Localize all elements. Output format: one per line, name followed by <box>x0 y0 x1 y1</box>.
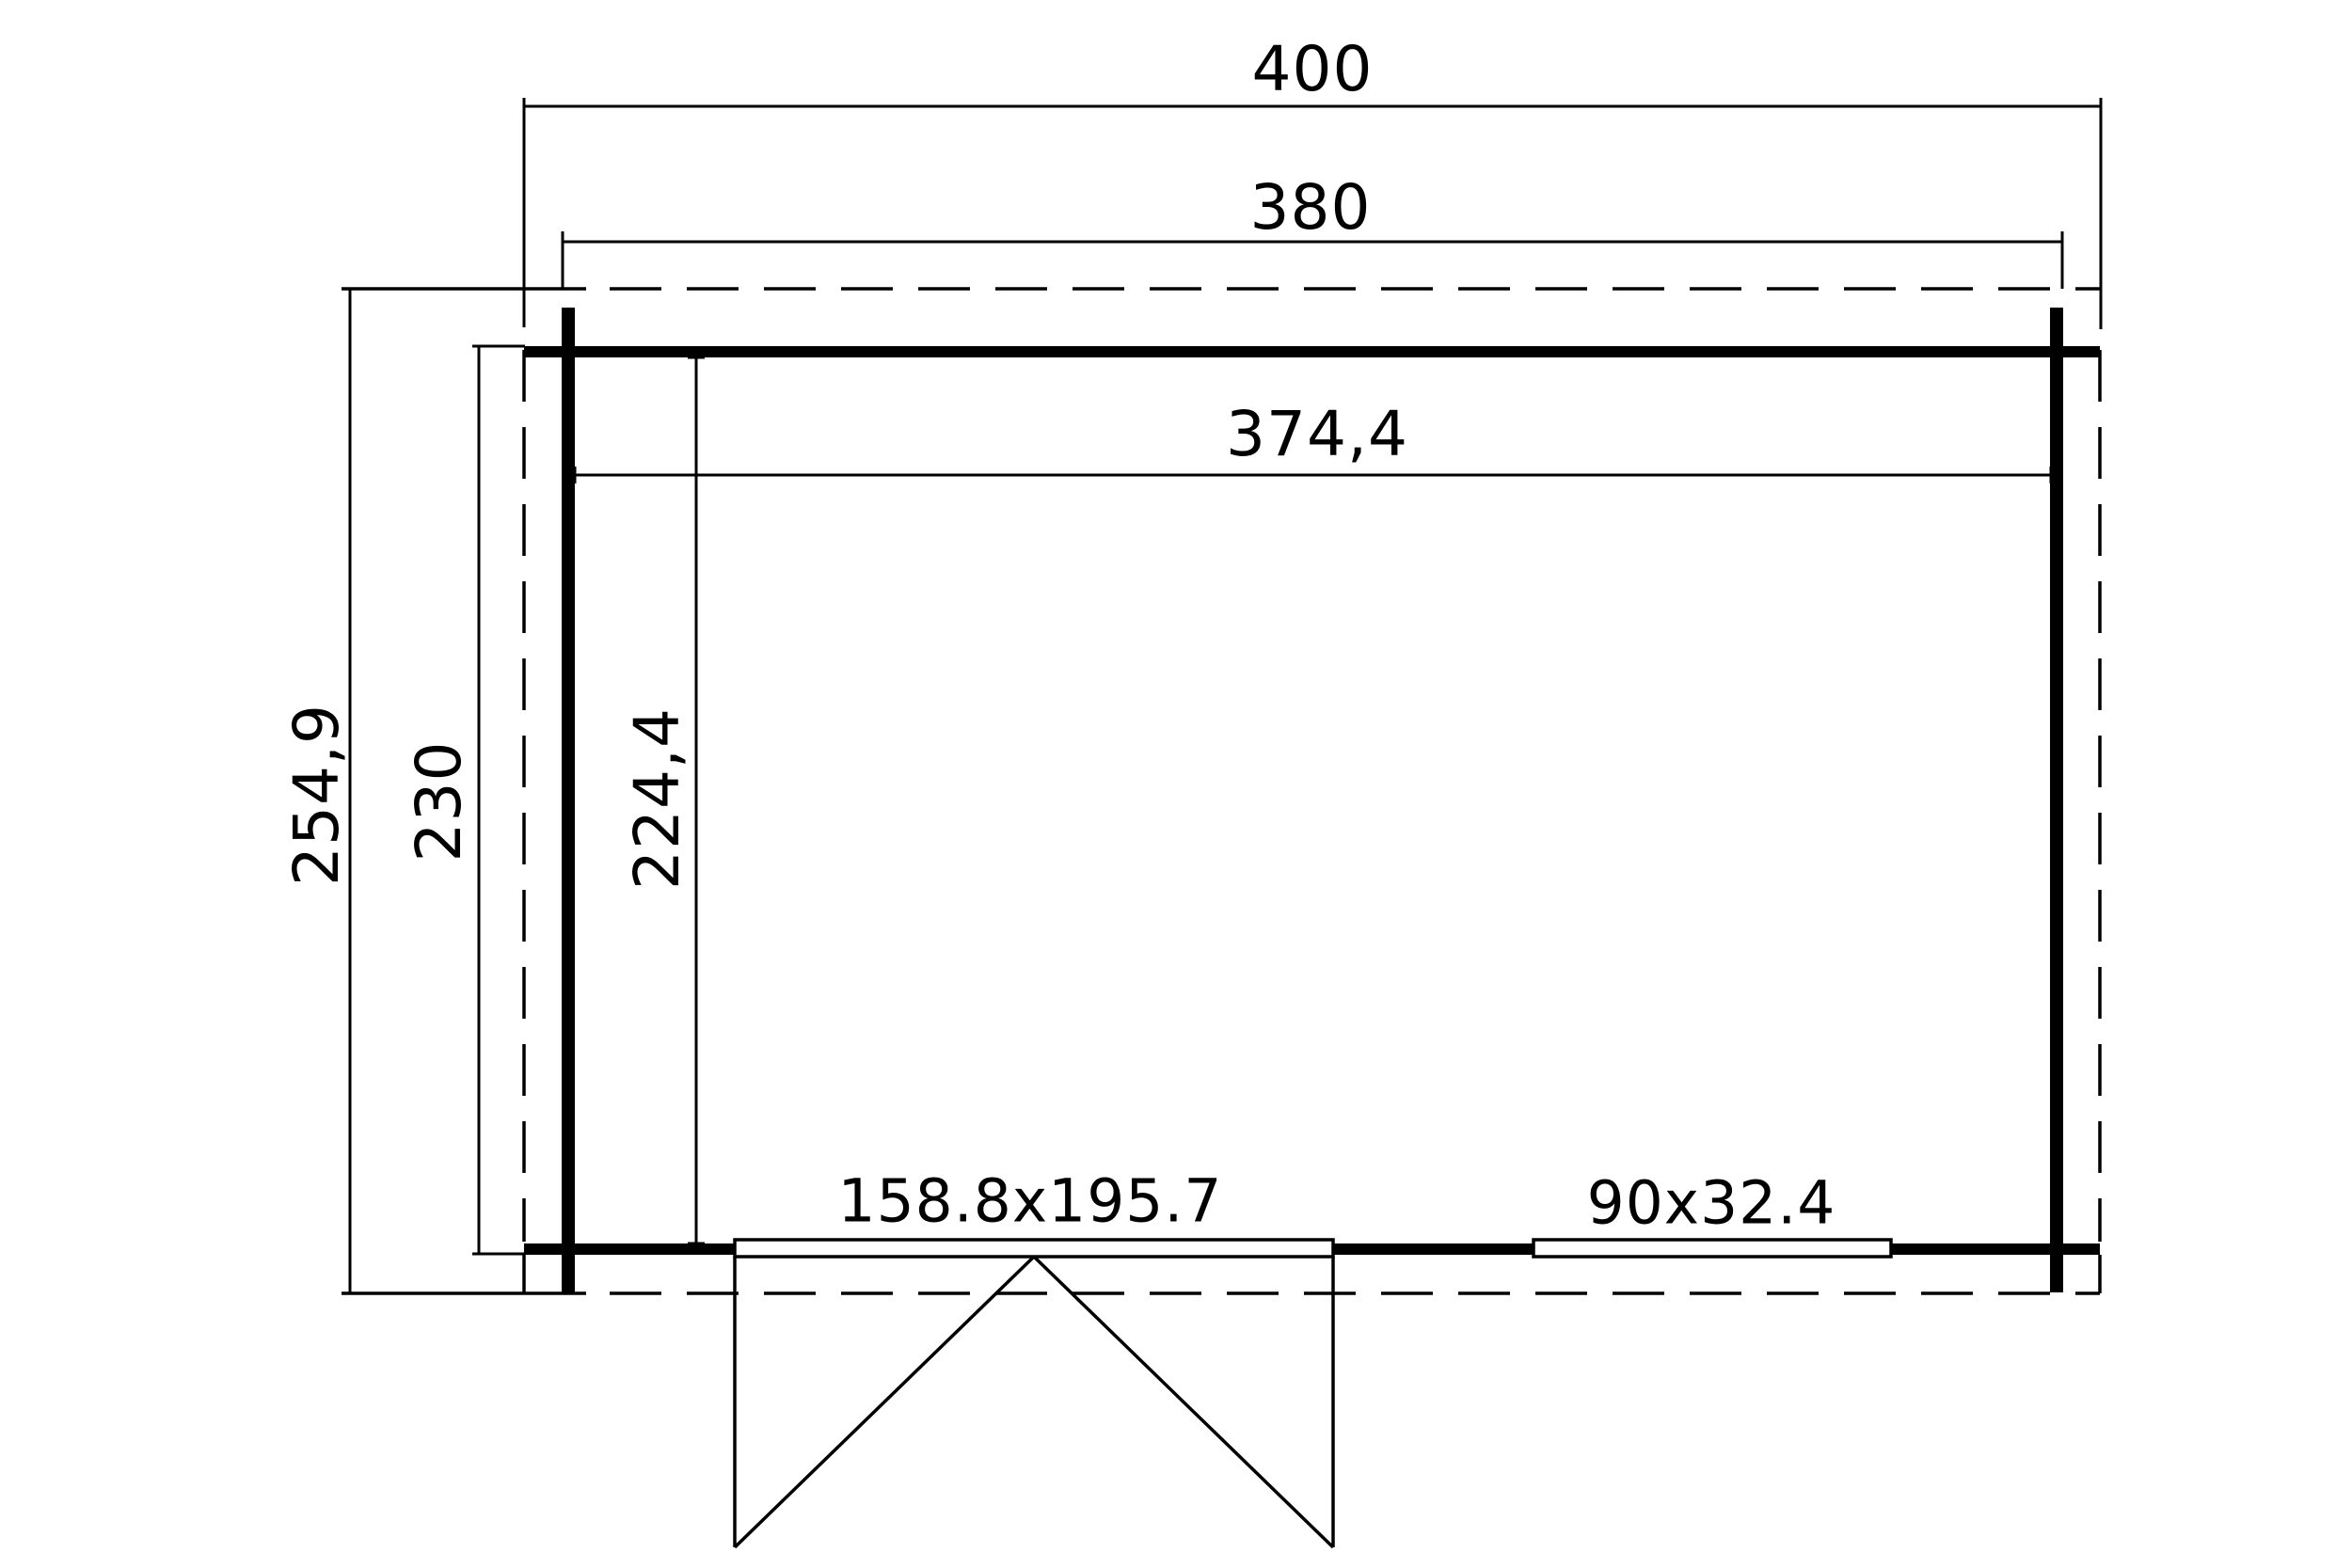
door-frame <box>735 1240 1333 1257</box>
wall-bottom-right-segment <box>1891 1243 2100 1255</box>
label-wall-depth: 230 <box>408 741 470 863</box>
floorplan-canvas: 400 380 374,4 254,9 230 224,4 158.8x195.… <box>0 0 2352 1568</box>
window <box>1534 1240 1891 1257</box>
label-inner-depth: 224,4 <box>627 707 689 890</box>
label-door-size: 158.8x195.7 <box>838 1172 1223 1231</box>
wall-bottom-left-segment <box>524 1243 735 1255</box>
wall-right-post <box>2050 308 2063 1292</box>
label-window-size: 90x32.4 <box>1587 1174 1836 1233</box>
label-inner-width: 374,4 <box>1226 404 1408 466</box>
label-wall-width: 380 <box>1250 177 1372 239</box>
floorplan-drawing <box>0 0 2352 1568</box>
wall-top <box>524 346 2100 357</box>
wall-bottom-middle-segment <box>1333 1243 1534 1255</box>
door-leaf-right-swing <box>1034 1257 1333 1547</box>
label-overall-width: 400 <box>1252 39 1374 101</box>
wall-left-post <box>562 308 575 1292</box>
label-overall-depth: 254,9 <box>286 704 348 886</box>
door-leaf-left-swing <box>735 1257 1034 1547</box>
